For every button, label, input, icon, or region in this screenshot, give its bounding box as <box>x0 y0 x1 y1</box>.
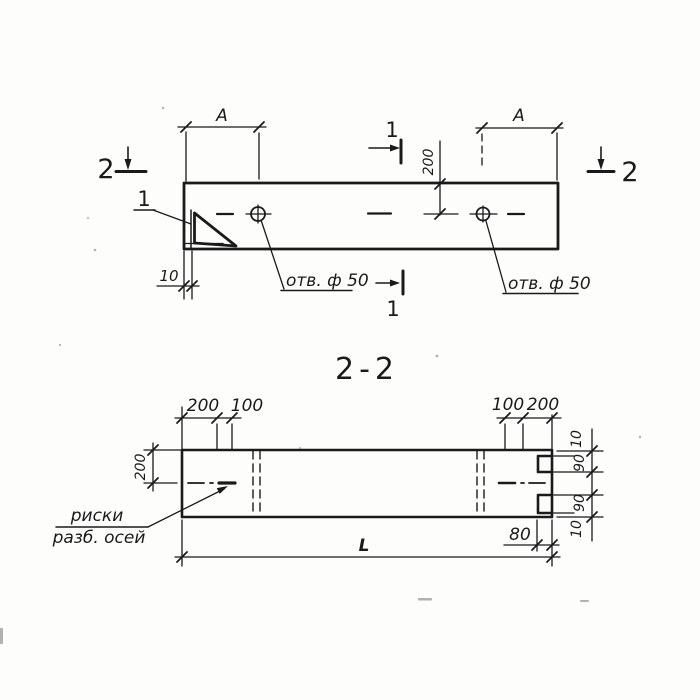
axis-marks-label-line1: риски <box>70 506 124 526</box>
dim-length: L <box>175 520 560 566</box>
dim-right-10-top: 10 <box>569 430 585 448</box>
dim-height-left: 200 <box>133 443 182 491</box>
section-mark-1-bottom: 1 <box>376 271 403 321</box>
section-mark-2-left: 2 <box>97 147 146 185</box>
section-mark-2-right: 2 <box>588 147 639 188</box>
dim-200-plan: 200 <box>421 141 458 219</box>
dim-top-left-200: 200 <box>187 396 219 416</box>
section-beam-outline <box>182 450 552 517</box>
hole-callout-left: отв. ф 50 <box>261 220 369 291</box>
dim-top-right-100: 100 <box>492 395 524 415</box>
dim-top-right-200: 200 <box>527 395 559 415</box>
dim-right-90-top: 90 <box>572 454 588 472</box>
hole-callout-right: отв. ф 50 <box>486 221 591 294</box>
section-view: 200 100 100 200 200 <box>52 395 603 566</box>
dim-a-right-value: A <box>512 106 525 126</box>
section-2-label: 2 <box>97 154 114 185</box>
dim-a-right: A <box>476 106 563 180</box>
plan-beam-outline <box>184 183 558 249</box>
dim-right-90-bottom: 90 <box>572 494 588 512</box>
corner-detail <box>185 210 236 248</box>
section-1-label: 1 <box>385 118 398 142</box>
dims-top-left: 200 100 <box>175 396 263 450</box>
dim-top-left-100: 100 <box>231 396 263 416</box>
dim-right-10-bottom: 10 <box>569 520 585 538</box>
section-1-label: 1 <box>386 297 399 321</box>
scan-noise <box>0 107 641 644</box>
dim-200-plan-value: 200 <box>421 149 437 176</box>
hole-label-right: отв. ф 50 <box>508 274 591 294</box>
hole-left <box>217 205 271 223</box>
hole-label-left: отв. ф 50 <box>286 271 369 291</box>
drawing-canvas: 1 A <box>0 0 700 700</box>
dim-height-value: 200 <box>133 454 149 481</box>
corner-detail-label: 1 <box>137 187 150 211</box>
dim-10-plan: 10 <box>157 251 199 299</box>
dim-a-left: A <box>178 106 266 181</box>
end-notch-bottom <box>538 495 552 513</box>
dims-top-right: 100 200 <box>492 395 561 450</box>
dim-80-value: 80 <box>509 525 531 545</box>
dim-a-left-value: A <box>215 106 228 126</box>
plan-view: 1 A <box>97 106 638 321</box>
corner-detail-callout: 1 <box>134 187 191 224</box>
dim-length-value: L <box>359 536 370 556</box>
section-title: 2-2 <box>335 352 399 387</box>
dims-right-edge: 10 90 90 10 <box>554 429 603 541</box>
drawing-sheet: 1 A <box>0 0 700 700</box>
hole-right <box>470 206 524 222</box>
end-notch-top <box>538 456 552 472</box>
hidden-hole-lines <box>253 451 484 516</box>
section-mark-1-top: 1 <box>369 118 401 163</box>
section-2-label: 2 <box>621 157 638 188</box>
dim-10-plan-value: 10 <box>159 267 178 285</box>
axis-marks-label-line2: разб. осей <box>52 528 146 548</box>
